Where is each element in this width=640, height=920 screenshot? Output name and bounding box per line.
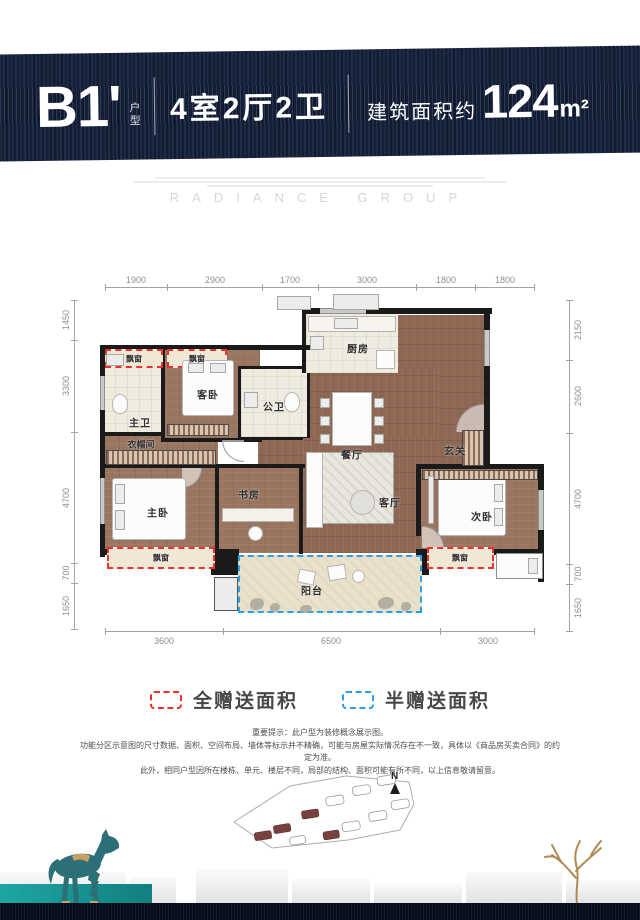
branch-decor <box>535 838 620 906</box>
area-unit: m² <box>559 95 589 123</box>
dim-label: 1800 <box>436 275 456 285</box>
floorplan-poster: B1' 户型 4室2厅2卫 建筑面积约 124 m² RADIANCE GROU… <box>0 0 640 920</box>
area-prefix: 建筑面积约 <box>367 95 477 126</box>
room-label-bay: 飘窗 <box>153 553 169 564</box>
window <box>100 478 105 524</box>
room-label-master-bath: 主卫 <box>129 415 151 430</box>
window <box>100 376 105 410</box>
dim-label: 1700 <box>280 275 300 285</box>
room-label-kitchen: 厨房 <box>347 341 369 356</box>
pillow <box>210 363 226 373</box>
room-label-bay: 飘窗 <box>452 553 468 564</box>
chair <box>374 416 384 426</box>
dim-label: 2600 <box>573 386 583 406</box>
legend-half-gift-swatch <box>342 691 374 709</box>
room-label-living: 客厅 <box>379 495 401 510</box>
dim-label: 1800 <box>495 275 515 285</box>
wall-segment <box>161 438 262 442</box>
room-label-foyer: 玄关 <box>444 443 466 458</box>
balcony-chair <box>327 564 347 582</box>
dim-label: 3600 <box>154 636 174 646</box>
room-layout: 4室2厅2卫 <box>170 81 329 127</box>
dining-table <box>332 392 372 446</box>
skyline-block <box>292 879 370 904</box>
chair <box>320 416 330 426</box>
disclaimer-line-1: 重要提示：此户型为装修概念展示图。 <box>80 727 560 740</box>
dim-label: 3000 <box>478 636 498 646</box>
equipment-platform <box>277 296 311 310</box>
room-label-public-bath: 公卫 <box>263 399 285 414</box>
room-label-cloak: 衣帽间 <box>127 438 154 451</box>
legend-full-gift-label: 全赠送面积 <box>193 686 298 713</box>
window <box>538 490 544 530</box>
room-label-master-bed: 主卧 <box>147 505 169 520</box>
balcony-table <box>352 570 365 583</box>
room-label-dining: 餐厅 <box>341 447 363 462</box>
wall-segment <box>416 464 421 536</box>
wardrobe <box>106 450 216 465</box>
chair <box>248 526 263 541</box>
stove <box>310 336 324 350</box>
dimension-left: 1450 3300 4700 700 1650 <box>66 300 82 630</box>
dim-label: 1650 <box>573 598 583 618</box>
chair <box>374 434 384 444</box>
pillow <box>494 508 503 526</box>
room-label-balcony: 阳台 <box>301 583 323 598</box>
north-arrow-icon <box>390 783 400 794</box>
header-band: B1' 户型 4室2厅2卫 建筑面积约 124 m² <box>0 45 640 161</box>
legend-full-gift-swatch <box>150 691 182 709</box>
pillow <box>188 363 204 373</box>
pillow <box>115 484 125 504</box>
wall-segment <box>100 432 165 436</box>
wall-segment <box>215 464 219 554</box>
dimension-line <box>569 300 570 632</box>
dimension-right: 2150 2600 4700 700 1650 <box>562 300 580 632</box>
horse-statue <box>32 828 132 906</box>
dim-label: 700 <box>573 566 583 581</box>
legend-half-gift-label: 半赠送面积 <box>385 686 490 713</box>
chair <box>374 398 384 408</box>
wall-segment <box>299 464 303 554</box>
wardrobe <box>422 470 538 480</box>
dimension-bottom: 3600 6500 3000 <box>105 631 535 653</box>
dim-label: 6500 <box>321 636 341 646</box>
dim-label: 2900 <box>205 275 225 285</box>
sink <box>244 392 258 408</box>
pillow <box>494 484 503 502</box>
dim-label: 4700 <box>61 488 71 508</box>
chair <box>320 434 330 444</box>
window <box>484 330 490 366</box>
utility-box <box>214 577 238 611</box>
unit-name: B1' <box>36 77 122 136</box>
dim-label: 1450 <box>61 310 71 330</box>
sink <box>106 354 124 366</box>
balcony-half-gift <box>238 555 422 613</box>
dim-label: 4700 <box>573 489 583 509</box>
fridge <box>376 350 395 369</box>
fine-print-line <box>134 181 506 183</box>
dimension-line <box>105 631 535 632</box>
dim-label: 3000 <box>357 275 377 285</box>
dimension-line <box>105 287 535 288</box>
equipment-platform <box>333 294 379 310</box>
disclaimer-line-2: 功能分区示意图的尺寸数据、面积、空间布局、墙体等标示并不精确，可能与房屋实际情况… <box>80 740 560 765</box>
brand-watermark: RADIANCE GROUP <box>0 190 640 205</box>
header-divider <box>348 74 350 132</box>
dim-label: 1650 <box>61 596 71 616</box>
area-group: 建筑面积约 124 m² <box>367 72 590 130</box>
header-divider <box>154 77 156 135</box>
skyline-block <box>196 869 288 904</box>
room-label-bay: 飘窗 <box>189 354 205 365</box>
area-value: 124 <box>482 73 558 129</box>
door-arc <box>222 440 244 462</box>
fine-print-line <box>207 185 433 187</box>
dim-label: 3300 <box>61 376 71 396</box>
wall-segment <box>302 308 306 373</box>
north-label: N <box>391 771 398 782</box>
toilet <box>112 394 128 414</box>
room-label-study: 书房 <box>238 487 260 502</box>
room-label-bay: 飘窗 <box>126 354 142 365</box>
ac-unit <box>528 558 538 574</box>
dim-label: 1900 <box>126 275 146 285</box>
room-label-guest-bed: 客卧 <box>197 387 219 402</box>
sofa <box>306 452 323 528</box>
fine-print-line <box>155 177 485 179</box>
kitchen-sink <box>334 318 358 329</box>
desk <box>222 508 294 522</box>
dimension-line <box>74 300 75 630</box>
dim-label: 2150 <box>573 320 583 340</box>
dimension-top: 1900 2900 1700 3000 1800 1800 <box>105 268 535 288</box>
dim-label: 700 <box>61 565 71 580</box>
footer-dark-band <box>0 903 640 920</box>
pillow <box>115 510 125 530</box>
tv-cabinet <box>428 476 434 524</box>
coffee-table <box>350 490 375 515</box>
unit-tag: 户型 <box>126 101 142 127</box>
toilet <box>284 392 300 412</box>
chair <box>320 398 330 408</box>
wardrobe <box>167 424 229 436</box>
room-label-second-bed: 次卧 <box>471 509 493 524</box>
legend: 全赠送面积 半赠送面积 <box>0 686 640 713</box>
skyline-block <box>374 884 462 904</box>
